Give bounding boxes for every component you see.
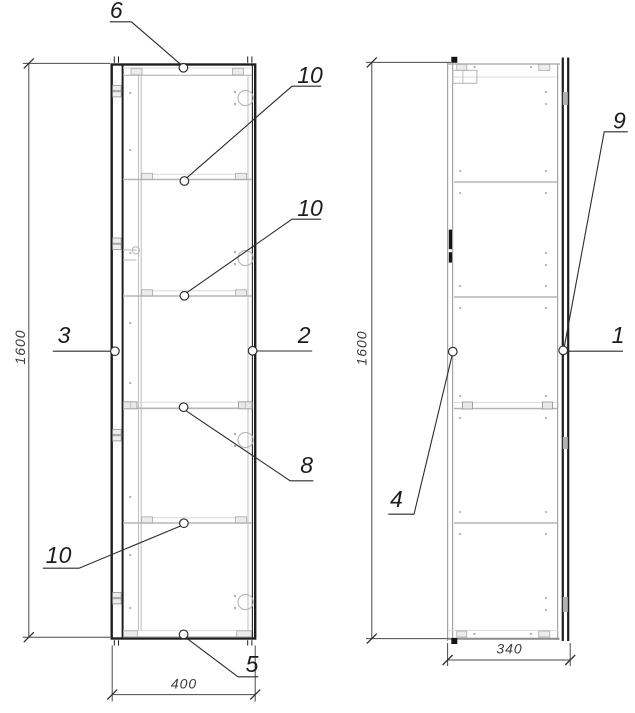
cabinet-drawing: 1600 400 1600 340 6 10 10: [0, 0, 635, 713]
callout-5-label: 5: [246, 651, 259, 677]
side-carcass: [448, 57, 560, 644]
front-width-value: 400: [171, 675, 197, 691]
side-view: [448, 57, 569, 644]
side-shelves: [454, 182, 557, 523]
callout-4: 4: [388, 347, 457, 514]
callout-8: 8: [179, 403, 313, 481]
callout-10-upper: 10: [180, 62, 323, 185]
front-left-hardware: [113, 86, 140, 604]
front-height-value: 1600: [12, 329, 28, 364]
callout-2-label: 2: [297, 322, 311, 348]
callout-10-middle: 10: [180, 195, 323, 300]
side-height-value: 1600: [354, 330, 370, 365]
callout-6-label: 6: [110, 0, 123, 23]
front-cabinet-outline: [112, 57, 256, 646]
callout-1-label: 1: [612, 322, 625, 348]
callout-10-middle-label: 10: [297, 195, 323, 221]
front-view: [112, 57, 256, 646]
callout-8-label: 8: [300, 452, 313, 478]
callout-3-label: 3: [58, 322, 71, 348]
callout-9-label: 9: [613, 108, 626, 134]
front-shelves: [123, 173, 252, 523]
callout-6: 6: [110, 0, 188, 72]
callout-10-lower-label: 10: [46, 542, 72, 568]
callout-3: 3: [53, 322, 119, 355]
callout-9: 9: [564, 108, 627, 347]
side-depth-value: 340: [496, 641, 522, 657]
callout-10-upper-label: 10: [297, 62, 323, 88]
callout-2: 2: [248, 322, 312, 355]
front-pin-holes: [129, 92, 131, 609]
front-inner-faces: [139, 75, 248, 631]
technical-drawing-canvas: 1600 400 1600 340 6 10 10: [0, 0, 635, 713]
callout-10-lower: 10: [43, 519, 188, 568]
dimension-side-height: 1600: [354, 57, 451, 643]
dimension-side-depth: 340: [443, 641, 576, 666]
dimension-front-width: 400: [107, 646, 260, 702]
callout-4-label: 4: [390, 486, 403, 512]
side-pin-holes: [459, 91, 547, 611]
